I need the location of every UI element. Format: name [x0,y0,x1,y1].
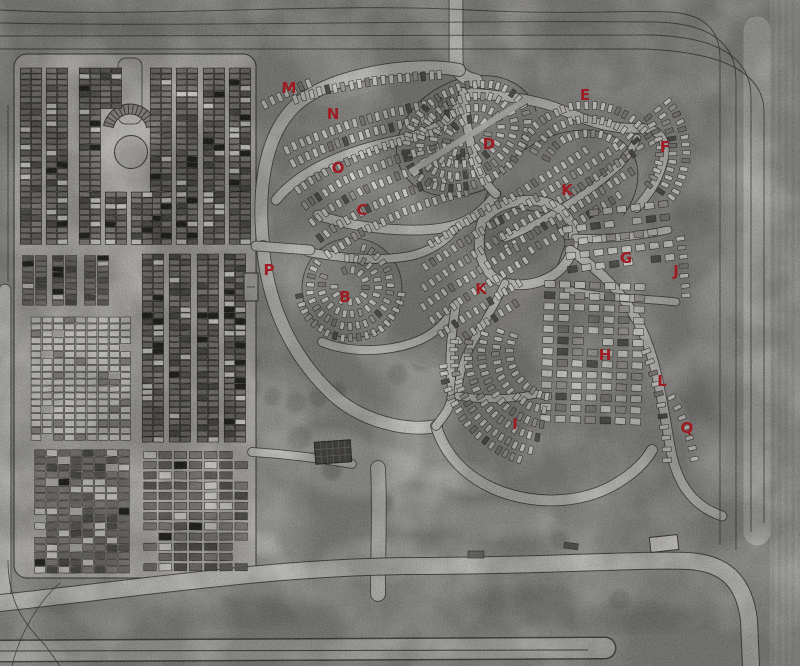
aerial-map: MNOCDEFKGJPBKHLIQ [0,0,800,666]
section-marker-I: I [512,415,518,433]
cemetery-aerial-view: MNOCDEFKGJPBKHLIQ [0,0,800,666]
section-marker-Q: Q [681,419,694,437]
section-marker-G: G [620,249,632,267]
section-marker-E: E [580,86,590,104]
section-marker-L: L [657,372,667,390]
section-marker-J: J [672,262,679,280]
section-marker-N: N [327,105,340,123]
section-marker-H: H [599,346,612,364]
section-marker-D: D [483,135,495,153]
section-marker-B: B [339,288,350,306]
section-marker-P: P [264,261,275,279]
photo-grain-layer [0,0,800,666]
section-marker-O: O [332,159,345,177]
section-marker-M: M [282,79,297,97]
section-marker-F: F [660,138,670,156]
section-marker-K-center: K [475,280,488,298]
section-marker-C: C [356,201,367,219]
section-marker-K-upper: K [561,181,574,199]
